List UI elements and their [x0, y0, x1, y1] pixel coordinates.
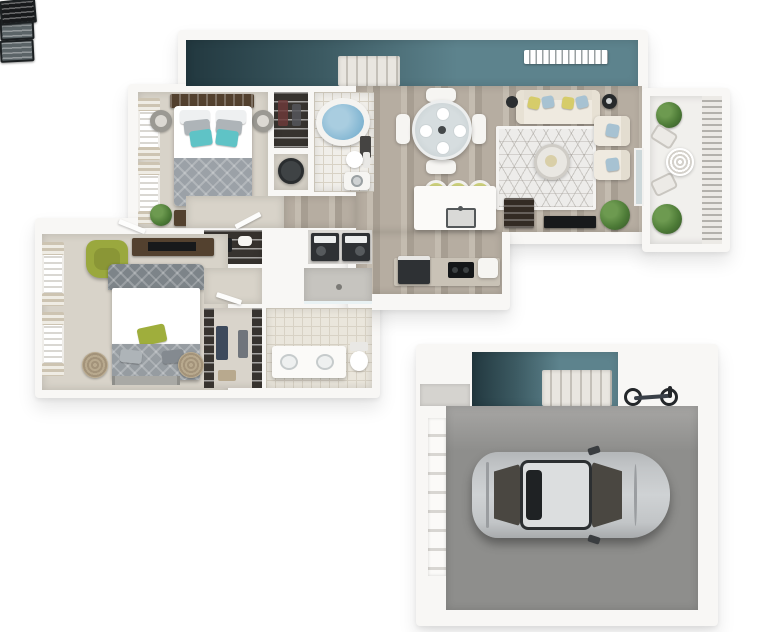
entry-stoop — [420, 384, 470, 406]
garage-door — [428, 418, 446, 576]
car-sunroof — [526, 470, 542, 520]
bicycle — [624, 384, 684, 408]
floor-plan-canvas — [0, 0, 777, 632]
car — [472, 452, 670, 538]
car-trunk-line — [486, 462, 489, 528]
car-hood-line — [634, 464, 637, 526]
car-rear-window — [494, 464, 520, 526]
car-windshield — [592, 462, 622, 528]
car-roof — [520, 460, 592, 530]
garage-unit — [0, 0, 777, 632]
staircase-lower — [542, 370, 612, 406]
bike-handlebar — [668, 386, 672, 398]
ceiling-vent-icon — [0, 0, 37, 26]
